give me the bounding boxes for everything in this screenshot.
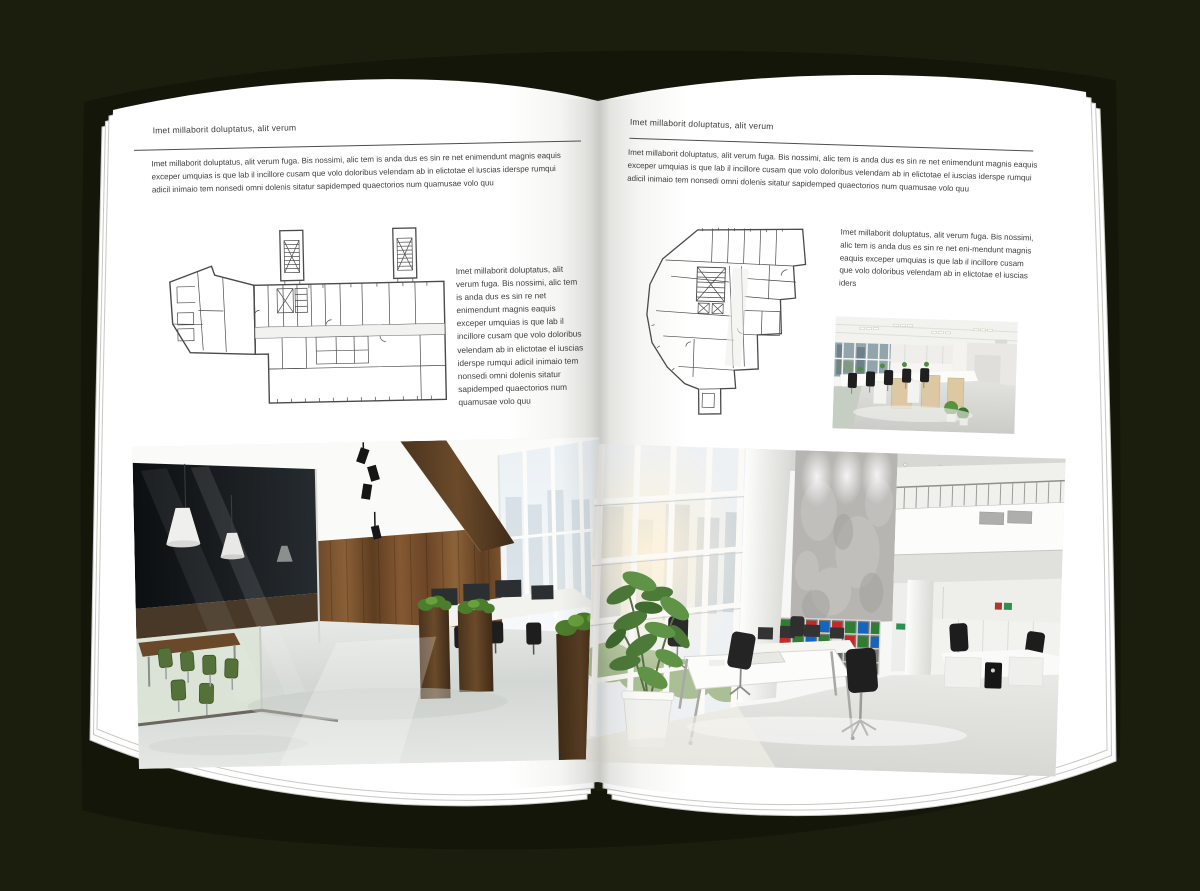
header-rule xyxy=(134,140,581,150)
floor-plan-left xyxy=(156,219,452,416)
waste-bin xyxy=(984,662,1002,689)
meeting-room-glass xyxy=(133,459,321,725)
mezzanine xyxy=(894,457,1066,590)
caption-paragraph: Imet millaborit doluptatus, alit verum f… xyxy=(456,262,587,409)
caption-paragraph: Imet millaborit doluptatus, alit verum f… xyxy=(839,226,1039,296)
column-2 xyxy=(904,580,933,689)
backdrop: Imet millaborit doluptatus, alit verum I… xyxy=(0,0,1200,891)
intro-paragraph: Imet millaborit doluptatus, alit verum f… xyxy=(151,150,568,198)
exit-sign-2 xyxy=(896,623,905,629)
right-page: Imet millaborit doluptatus, alit verum I… xyxy=(582,88,1083,827)
floor-plan-left-drawing xyxy=(156,219,452,411)
right-desks xyxy=(940,647,1059,691)
floor-plan-right xyxy=(637,215,833,426)
concrete-wall xyxy=(790,444,898,627)
office-photo-atrium xyxy=(586,444,1066,777)
left-page: Imet millaborit doluptatus, alit verum I… xyxy=(125,90,609,790)
page-title: Imet millaborit doluptatus, alit verum xyxy=(630,117,774,132)
office-photo-dark-loft xyxy=(132,437,606,769)
exit-sign xyxy=(1004,603,1012,610)
intro-paragraph: Imet millaborit doluptatus, alit verum f… xyxy=(627,147,1040,199)
office-photo-openspace xyxy=(832,316,1017,434)
page-title: Imet millaborit doluptatus, alit verum xyxy=(153,122,297,135)
sign-red xyxy=(995,603,1002,610)
floor-plan-right-drawing xyxy=(637,215,833,421)
